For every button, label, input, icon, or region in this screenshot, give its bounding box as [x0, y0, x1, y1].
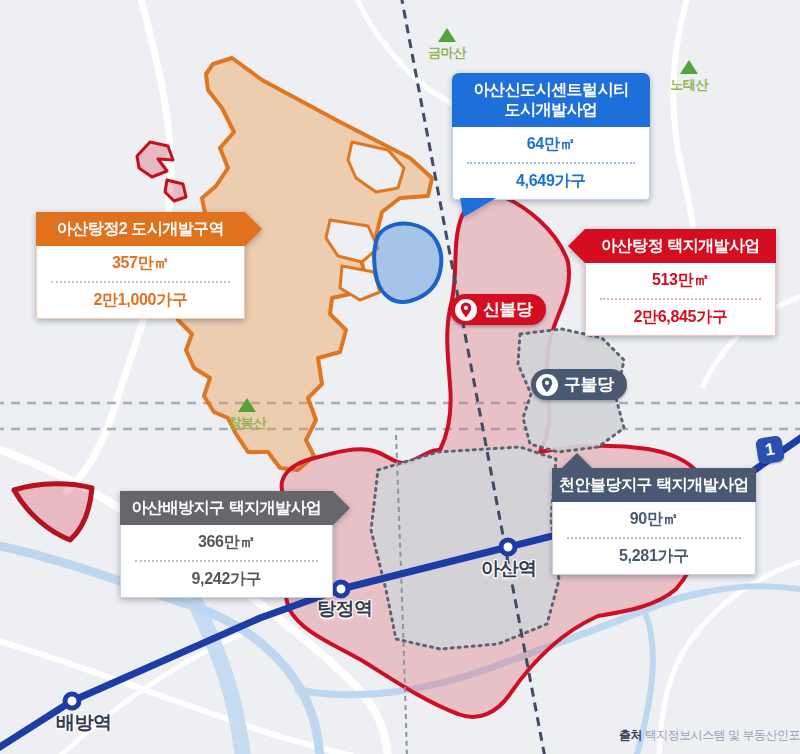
callout-body: 64만㎡ 4,649가구: [452, 127, 650, 200]
callout-title: 아산탕정 택지개발사업: [568, 229, 776, 263]
callout-households: 9,242가구: [121, 562, 332, 597]
mountain-label: 노태산: [670, 76, 708, 94]
callout-title: 아산신도시센트럴시티 도시개발사업: [452, 73, 650, 127]
mountain-icon: [238, 398, 256, 412]
callout-body: 357만㎡ 2만1,000가구: [36, 246, 245, 319]
callout-title: 천안불당지구 택지개발사업: [552, 468, 756, 502]
callout-title: 아산탕정2 도시개발구역: [36, 212, 262, 246]
mountain-chambong: 참봉산: [214, 398, 280, 432]
source-text: 택지정보시스템 및 부동산인포: [645, 728, 800, 742]
map-pin-icon: [535, 373, 559, 397]
station-label-tangjeong: 탕정역: [317, 596, 373, 622]
callout-area: 64만㎡: [453, 127, 649, 162]
callout-area: 366만㎡: [121, 525, 332, 560]
mountain-geumma: 금마산: [414, 28, 480, 62]
callout-households: 4,649가구: [453, 164, 649, 199]
marker-gubuldang: 구불당: [531, 369, 627, 400]
callout-households: 2만6,845가구: [586, 300, 775, 335]
callout-tangjeong: 아산탕정 택지개발사업 513만㎡ 2만6,845가구: [568, 229, 776, 336]
callout-households: 5,281가구: [553, 539, 755, 574]
callout-centralcity: 아산신도시센트럴시티 도시개발사업 64만㎡ 4,649가구: [452, 73, 650, 200]
callout-baebang: 아산배방지구 택지개발사업 366만㎡ 9,242가구: [120, 491, 350, 598]
zone-centralcity: [374, 223, 441, 302]
callout-body: 366만㎡ 9,242가구: [120, 525, 333, 598]
callout-area: 513만㎡: [586, 263, 775, 298]
mountain-notae: 노태산: [656, 60, 722, 94]
development-map: 금마산 노태산 참봉산 신불당 구불당 아산신도시센트럴시티 도시개발사업: [0, 0, 800, 754]
callout-body: 513만㎡ 2만6,845가구: [585, 263, 776, 336]
callout-area: 357만㎡: [37, 246, 244, 281]
callout-title: 아산배방지구 택지개발사업: [120, 491, 350, 525]
callout-area: 90만㎡: [553, 502, 755, 537]
marker-label: 구불당: [564, 373, 614, 396]
marker-label: 신불당: [483, 298, 533, 321]
callout-cheonanbuldang: 천안불당지구 택지개발사업 90만㎡ 5,281가구: [552, 468, 756, 575]
source-prefix: 출처: [619, 728, 642, 742]
station-label-asan: 아산역: [481, 556, 537, 582]
mountain-label: 금마산: [428, 44, 466, 62]
map-pin-icon: [454, 298, 478, 322]
subway-line-1-badge: 1: [755, 435, 785, 465]
callout-households: 2만1,000가구: [37, 283, 244, 318]
station-dot-asan: [501, 540, 515, 554]
station-dot-baebang: [65, 694, 79, 708]
mountain-icon: [680, 60, 698, 74]
source-credit: 출처 택지정보시스템 및 부동산인포: [619, 727, 800, 744]
callout-tangjeong2: 아산탕정2 도시개발구역 357만㎡ 2만1,000가구: [36, 212, 262, 319]
mountain-icon: [438, 28, 456, 42]
callout-body: 90만㎡ 5,281가구: [552, 502, 756, 575]
station-label-baebang: 배방역: [56, 710, 112, 736]
marker-sinbuldang: 신불당: [450, 294, 546, 325]
map-canvas: [0, 0, 800, 754]
mountain-label: 참봉산: [228, 414, 266, 432]
